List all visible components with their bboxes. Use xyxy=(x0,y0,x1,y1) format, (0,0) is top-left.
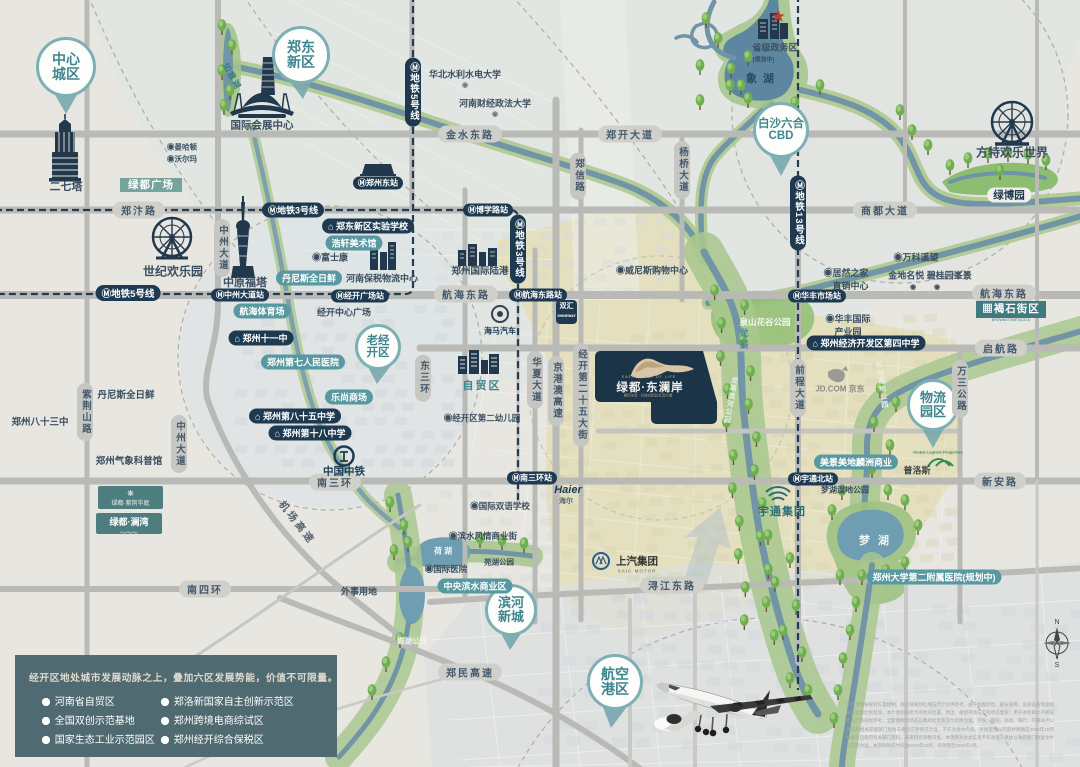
svg-text:S: S xyxy=(1055,662,1060,669)
svg-text:N: N xyxy=(1054,619,1059,626)
